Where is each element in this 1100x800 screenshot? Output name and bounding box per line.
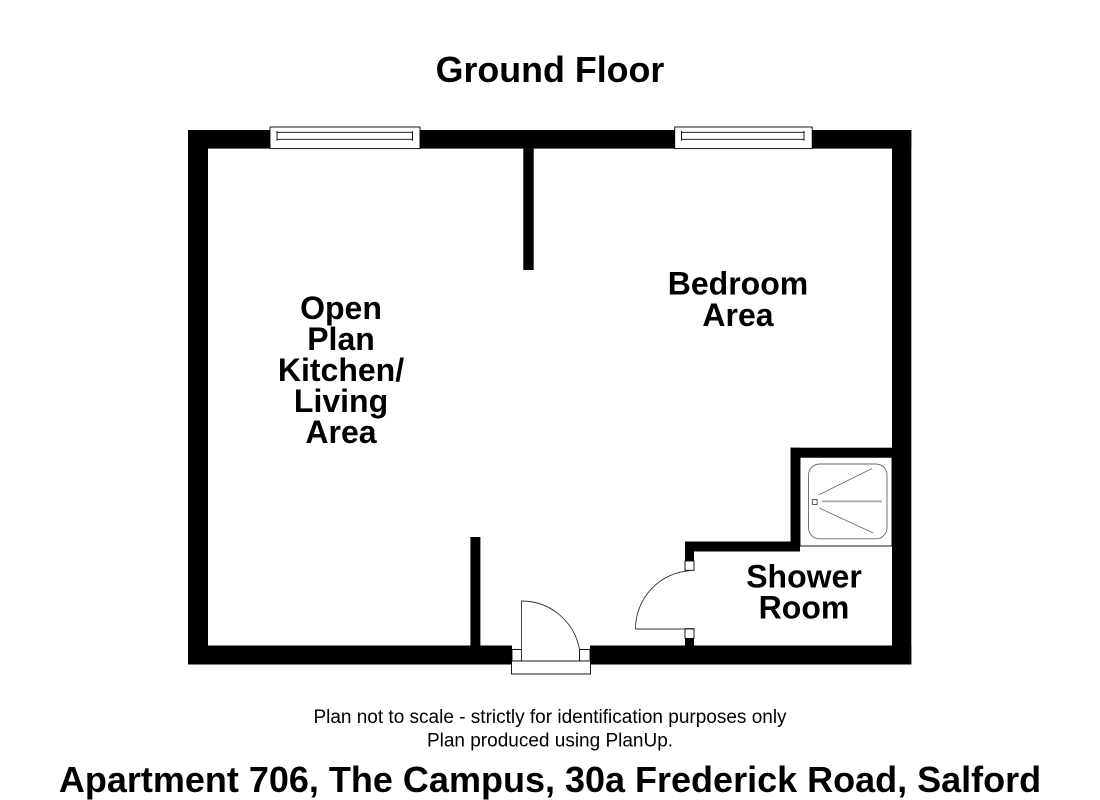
svg-text:Plan produced using PlanUp.: Plan produced using PlanUp. (427, 730, 673, 751)
svg-text:Area: Area (305, 414, 376, 450)
svg-text:Room: Room (759, 590, 850, 626)
svg-text:Apartment 706, The Campus, 30a: Apartment 706, The Campus, 30a Frederick… (59, 759, 1041, 800)
svg-text:Ground Floor: Ground Floor (436, 50, 665, 90)
svg-text:Area: Area (702, 297, 773, 333)
svg-text:Plan not to scale - strictly f: Plan not to scale - strictly for identif… (313, 707, 787, 728)
